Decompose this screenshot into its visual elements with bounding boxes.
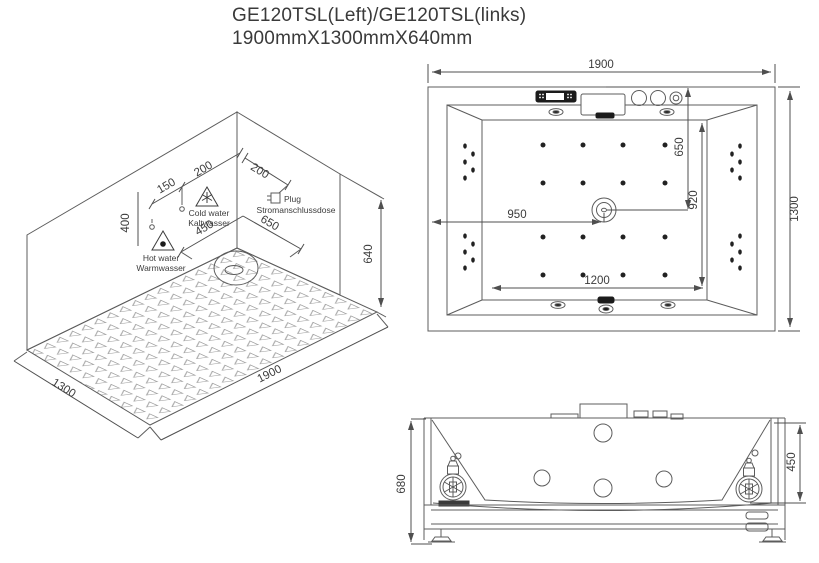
front-view — [411, 404, 806, 544]
top-dim-650: 650 — [674, 137, 686, 156]
top-dim-1200: 1200 — [584, 275, 610, 287]
front-dim-680: 680 — [396, 474, 408, 493]
side-jets — [463, 143, 742, 270]
top-dim-920: 920 — [688, 190, 700, 209]
technical-drawing: 200 150 400 200 450 650 640 1300 1900 Co… — [0, 0, 819, 563]
top-dim-1900: 1900 — [588, 59, 614, 71]
iso-dim-400: 400 — [120, 213, 132, 232]
control-knobs — [632, 91, 683, 106]
front-jets — [534, 424, 672, 497]
top-dim-950: 950 — [507, 209, 526, 221]
cold-water-label-en: Cold water — [189, 208, 230, 218]
pump-right-icon — [736, 458, 762, 502]
cold-water-label-de: Kaltwasser — [188, 218, 230, 228]
basin-outline — [432, 420, 770, 504]
overflow-right — [752, 450, 758, 456]
support-frame — [424, 505, 785, 531]
hot-water-label-en: Hot water — [143, 253, 180, 263]
plug-label-de: Stromanschlussdose — [257, 205, 336, 215]
rim-jets — [549, 109, 675, 313]
drawing-page: GE120TSL(Left)/GE120TSL(links) 1900mmX13… — [0, 0, 819, 563]
control-panel-icon — [536, 91, 576, 102]
headrest-icon — [581, 94, 625, 118]
hot-water-label-de: Warmwasser — [136, 263, 185, 273]
pump-left-icon — [439, 456, 469, 506]
iso-dim-1300: 1300 — [50, 377, 78, 401]
iso-dim-640: 640 — [363, 244, 375, 263]
plug-label-en: Plug — [284, 194, 301, 204]
feet — [428, 529, 786, 542]
headrest-front — [580, 404, 627, 418]
top-dim-1300: 1300 — [789, 196, 801, 222]
front-dim-450: 450 — [786, 452, 798, 471]
top-view — [428, 64, 800, 331]
basin-underside — [433, 503, 772, 511]
